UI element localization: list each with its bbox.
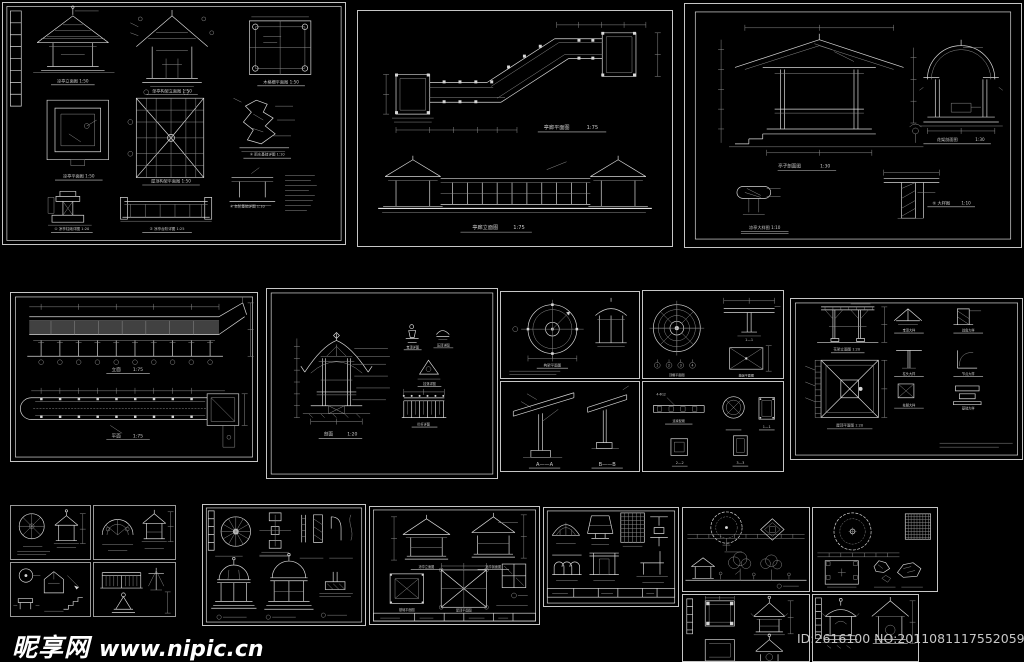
dome-gazebo-elevation-1	[211, 557, 256, 608]
drawing-label: 压顶详图	[437, 342, 450, 347]
rock-details	[874, 561, 921, 582]
section-a-a	[513, 393, 574, 458]
sheet-small-fan-pavilion	[93, 505, 176, 560]
drawing-label: 连梁配筋	[673, 418, 685, 423]
drawing-label: 凉亭剖面图	[486, 564, 502, 569]
sheet-pergola-details: 花架立面图 1:20 屋顶平面图 1:20 宝顶大样 戗角大样 柱头大样 节点大…	[790, 298, 1023, 460]
drawing-scale: 1:30	[975, 137, 985, 142]
sheet-long-corridor: 立面 1:75 平面 1:75	[10, 292, 258, 462]
revision-strip	[10, 11, 21, 106]
pavilion-elevation-2	[472, 513, 527, 558]
detail-label: 基础大样	[962, 406, 975, 411]
drawing-label: 1—1	[745, 338, 753, 342]
sheet-gazebo-plans	[682, 594, 810, 662]
drawing-scale: 1:75	[513, 225, 525, 231]
sheet-corridor: 亭廊平面图 1:75 亭廊立面图 1:75	[357, 10, 673, 247]
grid-bubble-label: 1	[656, 363, 658, 367]
sheet6d-drawing: 4-Φ12 连梁配筋 1—1 2—2 3—3	[643, 382, 783, 471]
pavilion-frame-elevation	[130, 10, 213, 86]
grid-bubble-label: 2	[668, 363, 670, 367]
small-details-row	[302, 515, 352, 543]
sheet8b-drawing	[94, 506, 175, 559]
paving-grid-detail	[496, 564, 527, 605]
revision-strip	[208, 511, 214, 550]
image-id-text: ID:2616100 NO:20110811175520595000	[797, 631, 1024, 646]
drawing-label: 亭廊立面图	[472, 223, 498, 231]
wood-grille-plan	[249, 17, 310, 75]
pavilion-elevation-1	[391, 515, 450, 560]
title-block	[547, 588, 674, 597]
notes-block	[285, 176, 317, 211]
sheet-landscape-elevation	[682, 507, 810, 592]
finial-detail	[406, 325, 419, 343]
sheet-dome-gazebos	[202, 504, 366, 626]
sheet2-drawing: 亭廊平面图 1:75 亭廊立面图 1:75	[358, 11, 672, 246]
drawing-scale: 1:75	[133, 367, 143, 373]
sheet-round-plan: 构架平面图	[500, 291, 640, 379]
fan-roof-plan	[102, 519, 133, 544]
drawing-label: 亭子剖面图	[778, 163, 801, 170]
drawing-label: ⑤ 大样图	[933, 199, 951, 205]
drawing-label: ④ 台阶基础详图 1:10	[230, 203, 266, 208]
drawing-scale: 1:10	[961, 200, 971, 205]
trellis-grid-detail	[621, 513, 645, 542]
column-base-detail	[48, 191, 92, 225]
drawing-label: 平面	[112, 433, 122, 439]
detail-label: 柱头大样	[903, 371, 916, 376]
circular-plan	[513, 300, 584, 362]
gazebo-plan	[705, 596, 734, 626]
pavilion-section	[294, 333, 390, 425]
drawing-label: 花架剖面图	[937, 136, 958, 142]
sheet-tree-rocks	[812, 507, 938, 592]
step-base-detail	[230, 168, 276, 206]
label-marks	[215, 556, 353, 558]
drawing-label: 屋顶平面图 1:20	[836, 422, 864, 427]
corridor-elevation	[378, 156, 652, 213]
sheet8c-drawing	[11, 563, 90, 616]
drawing-label: ③ 雨水基础详图 1:10	[250, 152, 286, 157]
drawing-label: 花架立面图 1:20	[833, 346, 861, 351]
round-pavilion-elevation	[595, 298, 626, 347]
coping-detail	[436, 331, 449, 340]
sheet10-drawing: 凉亭立面图 凉亭剖面图 基础平面图 屋顶平面图	[370, 507, 539, 624]
sheet-gazebo-elevations	[812, 594, 919, 662]
drawing-scale: 1:30	[820, 164, 830, 170]
section-1-1	[759, 398, 775, 420]
column-plan	[825, 561, 858, 584]
drawing-label: ① 凉亭柱础详图 1:20	[54, 226, 90, 231]
drawing-scale: 1:75	[587, 125, 599, 131]
nipic-watermark: 昵享网 www.nipic.cn	[12, 628, 264, 662]
sheet13-drawing	[683, 595, 809, 661]
footing-plan	[730, 346, 772, 371]
concentric-plan: 1 2 3 4	[649, 301, 704, 368]
drawing-label: 凉亭大样图 1:10	[749, 224, 781, 230]
rebar-annotation: 4-Φ12	[656, 393, 666, 397]
sheet14-drawing	[813, 508, 937, 591]
drawing-label: ② 凉亭台阶详图 1:25	[150, 226, 185, 231]
cad-collage-canvas: 凉亭立面图 1:50 单亭构架立面图 1:50 木格栅平面图 1:50 凉亭平面…	[0, 0, 1024, 662]
sheet-pavilion-details: 凉亭立面图 1:50 单亭构架立面图 1:50 木格栅平面图 1:50 凉亭平面…	[2, 2, 346, 245]
fan-grate-detail	[552, 523, 579, 536]
hut-detail	[44, 572, 79, 593]
section-label: B——B	[599, 462, 617, 468]
section-2-2	[671, 439, 688, 456]
sheet-section-details: 剖面 1:20 宝顶详图 压顶详图 挂落详图 栏杆详图	[266, 288, 498, 479]
sheet-element-details	[543, 507, 679, 607]
drawing-label: 宝顶详图	[406, 344, 419, 349]
sheet7-drawing: 花架立面图 1:20 屋顶平面图 1:20 宝顶大样 戗角大样 柱头大样 节点大…	[791, 299, 1022, 459]
beam-rebar-detail: 4-Φ12	[653, 393, 704, 413]
pavilion-elevation	[33, 6, 114, 72]
inner-frame	[795, 303, 1017, 455]
finial-obelisk-detail	[112, 592, 171, 613]
dome-gazebo-elevation-2	[264, 553, 313, 609]
sheet-small-wheel-pavilion	[10, 505, 91, 560]
paving-hatch-square	[905, 514, 930, 539]
sheet1-drawing: 凉亭立面图 1:50 单亭构架立面图 1:50 木格栅平面图 1:50 凉亭平面…	[3, 3, 345, 244]
revision-strip	[687, 599, 693, 634]
tree-plan	[687, 512, 804, 551]
sheet-pavilion-sheet: 凉亭立面图 凉亭剖面图 基础平面图 屋顶平面图	[369, 506, 540, 625]
sheet8a-drawing	[11, 506, 90, 559]
bracket-detail	[418, 360, 441, 379]
drawing-label: 剖面	[324, 430, 334, 437]
drawing-label: 构架平面图	[544, 362, 562, 367]
corridor-plan	[383, 22, 661, 133]
detail-label: 柱脚大样	[903, 403, 916, 408]
sheet3-drawing: 亭子剖面图 1:30 花架剖面图 1:30 ⑤ 大样图 1:10 凉亭大样图 1…	[685, 4, 1021, 247]
planter-detail	[587, 516, 612, 539]
inner-frame	[206, 508, 361, 622]
drawing-label: 屋顶平面图	[456, 608, 472, 613]
drawing-label: 凉亭立面图	[419, 564, 435, 569]
wheel-plan	[221, 517, 251, 547]
tree-plan	[817, 513, 899, 557]
sheet8d-drawing	[94, 563, 175, 616]
sheet15-drawing	[813, 595, 918, 661]
beam-detail	[737, 186, 781, 214]
railing-detail	[100, 573, 142, 588]
drawing-label: 挂落详图	[423, 381, 436, 386]
inner-frame	[271, 293, 493, 474]
drawing-label: 屋顶构架平面图 1:50	[151, 178, 191, 184]
drawing-label: 单亭构架立面图 1:50	[152, 87, 192, 93]
table-bench-detail	[13, 599, 39, 610]
small-pavilion-elevation	[54, 510, 86, 544]
drawing-label: 木格栅平面图 1:50	[263, 78, 299, 84]
drawing-scale: 1:20	[347, 431, 357, 437]
drawing-label: 顶棚平面图	[669, 372, 685, 377]
detail-label: 戗角大样	[962, 328, 975, 333]
grid-bubble-label: 3	[680, 363, 682, 367]
drawing-label: 栏杆详图	[417, 422, 430, 427]
bench-detail	[636, 551, 667, 576]
sheet9-drawing	[203, 505, 365, 625]
drawing-label: 基础平面图	[399, 607, 415, 612]
small-pavilion-elevation	[142, 510, 174, 542]
nipic-site-name: 昵享网	[12, 628, 90, 662]
mast-detail	[148, 568, 163, 590]
landscape-elevation	[685, 552, 806, 580]
pavilion-section	[718, 25, 923, 156]
drawing-scale: 1:75	[133, 433, 143, 439]
wheel-plan	[19, 514, 44, 539]
gazebo-elevation	[751, 596, 794, 635]
section-label: 2—2	[676, 461, 684, 465]
arch-window-detail	[552, 555, 581, 575]
sheet5-drawing: 剖面 1:20 宝顶详图 压顶详图 挂落详图 栏杆详图	[267, 289, 497, 478]
drawing-label: 基础平面图	[738, 373, 754, 378]
corridor-elevation	[27, 297, 253, 365]
sheet6b-drawing: 1 2 3 4 1—1 顶棚平面图 基础平面图	[643, 291, 783, 378]
sheet-rebar-details: 4-Φ12 连梁配筋 1—1 2—2 3—3	[642, 381, 784, 472]
base-section-detail	[319, 572, 352, 597]
sheet4-drawing: 立面 1:75 平面 1:75	[11, 293, 257, 461]
inner-frame	[373, 510, 535, 621]
circular-section-detail	[723, 397, 745, 419]
sheet6c-drawing: A——A B——B	[501, 382, 639, 471]
section-b-b	[588, 386, 629, 449]
steps-detail	[64, 598, 83, 610]
railing-detail	[402, 389, 447, 418]
roof-plan	[439, 563, 488, 609]
notes-lines	[509, 371, 560, 374]
section-label: 1—1	[763, 425, 771, 429]
sheet6a-drawing: 构架平面图	[501, 292, 639, 378]
corner-detail	[884, 170, 940, 219]
masonry-base-detail	[234, 98, 295, 152]
connector-details	[650, 517, 668, 546]
pyramid-roof-plan	[805, 360, 887, 417]
label-marks	[108, 548, 164, 550]
detail-label: 宝顶大样	[903, 328, 916, 333]
pergola-elevation	[817, 304, 887, 343]
title-block	[373, 613, 535, 621]
arch-elevation	[911, 40, 1003, 134]
sheet12-drawing	[683, 508, 809, 591]
gate-detail	[589, 553, 618, 575]
step-detail	[120, 197, 211, 221]
drawing-label: 立面	[112, 366, 122, 373]
sheet-small-details-1	[10, 562, 91, 617]
section-3-3	[734, 436, 748, 456]
gazebo-plan-2	[705, 640, 734, 661]
drawing-label: 亭廊平面图	[544, 123, 570, 131]
sheet-pavilion-section: 亭子剖面图 1:30 花架剖面图 1:30 ⑤ 大样图 1:10 凉亭大样图 1…	[684, 3, 1022, 248]
foundation-plan	[390, 574, 423, 603]
section-label: A——A	[536, 462, 554, 468]
pavilion-plan	[47, 100, 108, 165]
label-marks	[17, 546, 76, 554]
nipic-site-url: www.nipic.cn	[99, 637, 264, 662]
diamond-plan	[761, 519, 784, 540]
section-label: 3—3	[736, 461, 744, 465]
column-cap-detail	[724, 298, 781, 336]
sheet-ceiling-plan: 1 2 3 4 1—1 顶棚平面图 基础平面图	[642, 290, 784, 379]
detail-label: 节点大样	[962, 371, 975, 376]
grid-bubble-label: 4	[691, 363, 693, 367]
gazebo-section-2	[756, 634, 783, 661]
drawing-label: 凉亭平面图 1:50	[63, 173, 95, 179]
roof-framing-plan	[128, 90, 204, 178]
circle-detail	[19, 569, 40, 582]
sheet-aa-bb-sections: A——A B——B	[500, 381, 640, 472]
sheet-small-details-2	[93, 562, 176, 617]
cross-plan	[259, 513, 290, 555]
drawing-label: 凉亭立面图 1:50	[57, 77, 89, 83]
sheet11-drawing	[544, 508, 678, 606]
